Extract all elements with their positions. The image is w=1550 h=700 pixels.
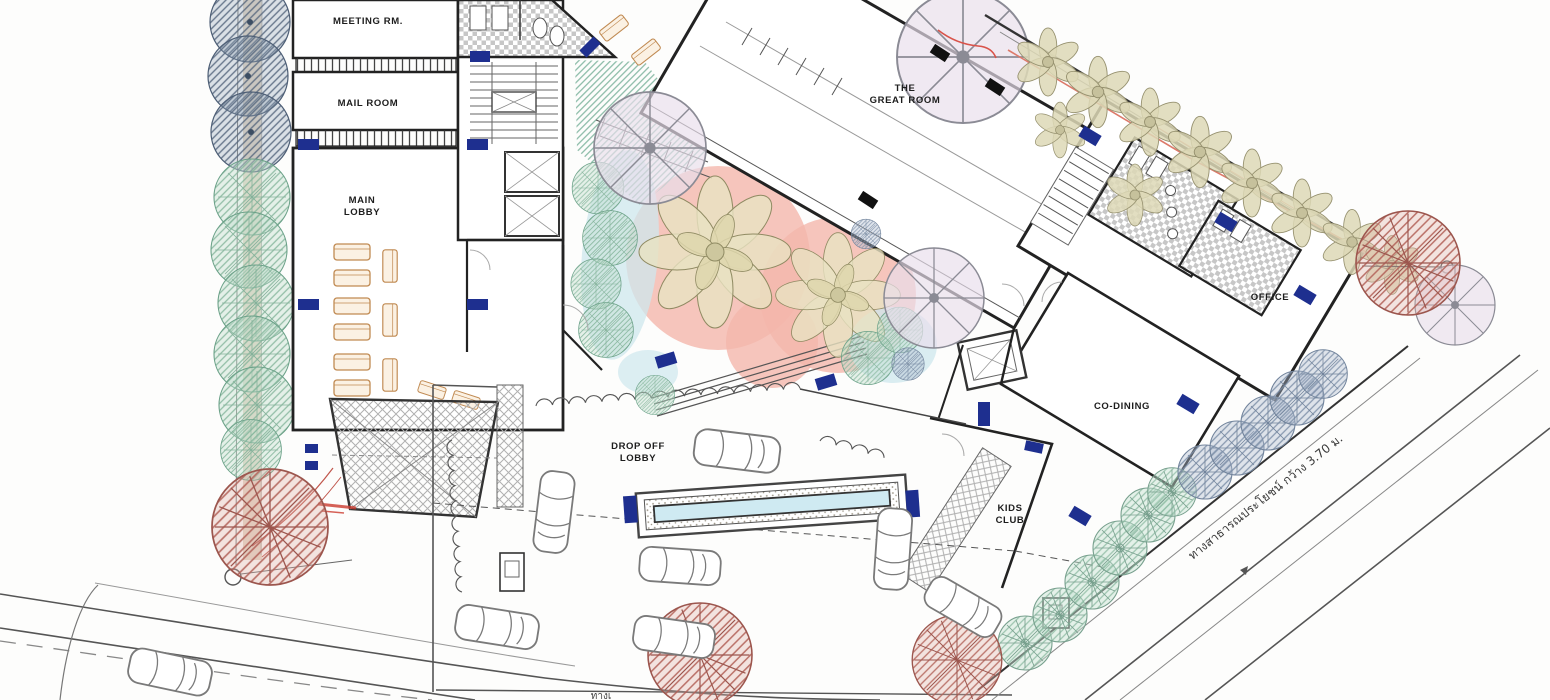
tree [571, 259, 621, 309]
car [453, 603, 540, 650]
tree [212, 469, 328, 585]
main-lobby-label-1: MAIN [349, 195, 376, 206]
reflecting-pool [623, 474, 920, 538]
great-room-label-1: THE [895, 83, 916, 94]
tree [635, 375, 675, 415]
canopy-tree [594, 92, 706, 204]
site-plan-drawing: MEETING RM. MAIL ROOM MAIN LOBBY THE GRE… [0, 0, 1550, 700]
meeting-room [293, 0, 458, 58]
car [126, 646, 214, 697]
office-label: OFFICE [1251, 292, 1289, 303]
drop-off-label-2: LOBBY [620, 453, 656, 464]
car [532, 470, 576, 555]
mail-room-label: MAIL ROOM [338, 98, 399, 109]
canopy-tree [884, 248, 984, 348]
car [638, 546, 721, 586]
car [873, 507, 913, 590]
great-room-label-2: GREAT ROOM [870, 95, 941, 106]
tree [1299, 350, 1348, 399]
car [692, 428, 781, 474]
tree [892, 348, 924, 380]
main-lobby-label-2: LOBBY [344, 207, 380, 218]
entry-canopy [318, 399, 498, 517]
hedge-row-right [820, 436, 884, 457]
tree [851, 219, 881, 249]
bottom-road-label: ทางเ [591, 691, 612, 700]
tree [1356, 211, 1460, 315]
co-dining-label: CO-DINING [1094, 401, 1150, 412]
tree [583, 211, 638, 266]
meeting-room-label: MEETING RM. [333, 16, 403, 27]
kids-club-label-2: CLUB [996, 515, 1025, 526]
drop-off-label-1: DROP OFF [611, 441, 665, 452]
site-plan: MEETING RM. MAIL ROOM MAIN LOBBY THE GRE… [0, 0, 1550, 700]
tree [579, 303, 634, 358]
kids-club-label-1: KIDS [997, 503, 1022, 514]
